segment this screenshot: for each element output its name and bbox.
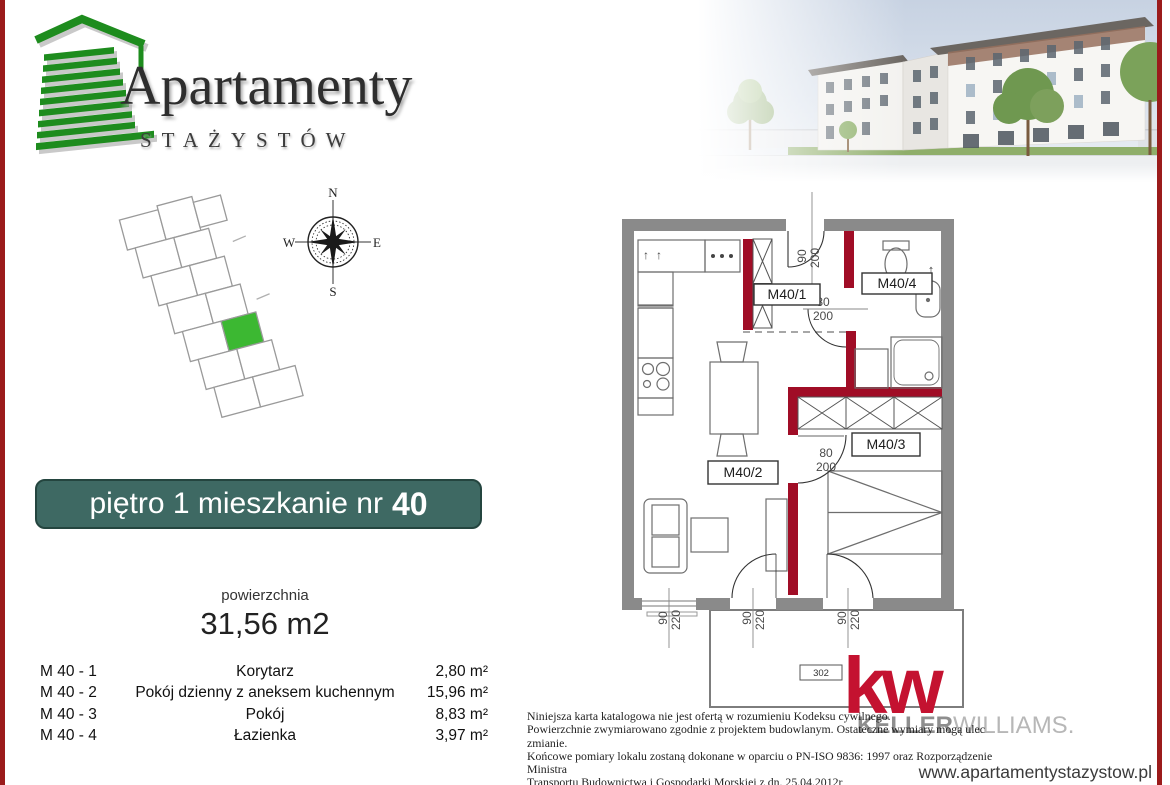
room-area: 8,83 m² [408,704,488,725]
room-table: M 40 - 1 Korytarz 2,80 m² M 40 - 2 Pokój… [30,661,488,747]
window1-width: 90 [656,611,670,625]
page-border-left [0,0,5,785]
compass-north-label: N [328,185,338,200]
page-border-right [1157,0,1162,785]
hob-dots [711,254,733,258]
room-name: Korytarz [122,661,408,682]
window2-height: 220 [753,610,767,630]
compass-east-label: E [373,235,381,250]
logo: Apartamenty STAŻYSTÓW [28,12,518,172]
balcony-label: 302 [813,668,829,679]
window2-width: 90 [740,611,754,625]
entry-door-height: 200 [808,248,822,268]
living-furniture [644,499,787,573]
apartment-banner: piętro 1 mieszkanie nr 40 [35,479,482,529]
table-row: M 40 - 3 Pokój 8,83 m² [30,704,488,725]
window3-height: 220 [848,610,862,630]
up-arrow-icon: ↑ [656,248,662,262]
room-area: 2,80 m² [408,661,488,682]
logo-subtitle: STAŻYSTÓW [140,128,355,153]
table-row: M 40 - 4 Łazienka 3,97 m² [30,725,488,746]
render-fade-bottom [698,0,1160,182]
banner-text: piętro 1 mieszkanie nr [89,487,382,521]
compass-west-label: W [283,235,296,250]
room-label-m3: M40/3 [867,436,906,452]
entry-door-width: 90 [795,249,809,263]
table-row: M 40 - 1 Korytarz 2,80 m² [30,661,488,682]
area-label: powierzchnia [75,587,455,604]
room-area: 3,97 m² [408,725,488,746]
window1-height: 220 [669,610,683,630]
logo-title: Apartamenty [120,54,412,118]
compass-icon: N S W E [281,184,385,300]
building-rendering [698,0,1160,182]
room-area: 15,96 m² [408,682,488,703]
bath-door-height: 200 [813,309,833,323]
disclaimer-line: Niniejsza karta katalogowa nie jest ofer… [527,710,1019,723]
bed [828,471,942,554]
room-code: M 40 - 1 [30,661,122,682]
table-row: M 40 - 2 Pokój dzienny z aneksem kuchenn… [30,682,488,703]
room-name: Pokój dzienny z aneksem kuchennym [122,682,408,703]
room-code: M 40 - 2 [30,682,122,703]
up-arrow-icon: ↑ [643,248,649,262]
banner-number: 40 [392,486,428,523]
room-code: M 40 - 3 [30,704,122,725]
total-area: powierzchnia 31,56 m2 [75,587,455,642]
room-label-m1: M40/1 [768,286,807,302]
wardrobe [798,397,942,429]
area-value: 31,56 m2 [75,606,455,642]
room-label-m4: M40/4 [878,275,917,291]
catalog-page: Apartamenty STAŻYSTÓW N S W E [0,0,1170,785]
disclaimer-line: Powierzchnie zwymiarowano zgodnie z proj… [527,723,1019,750]
window3-width: 90 [835,611,849,625]
room-code: M 40 - 4 [30,725,122,746]
room-name: Pokój [122,704,408,725]
kitchen-fixtures [638,240,758,456]
floor-plan: ↑ ↑ ↑ [605,185,985,715]
website-url-link[interactable]: www.apartamentystazystow.pl [700,762,1152,783]
compass-south-label: S [329,284,336,299]
room-door-width: 80 [819,446,833,460]
room-label-m2: M40/2 [724,464,763,480]
room-door-height: 200 [816,460,836,474]
sink-arrow-icons: ↑ ↑ [643,248,662,262]
room-name: Łazienka [122,725,408,746]
